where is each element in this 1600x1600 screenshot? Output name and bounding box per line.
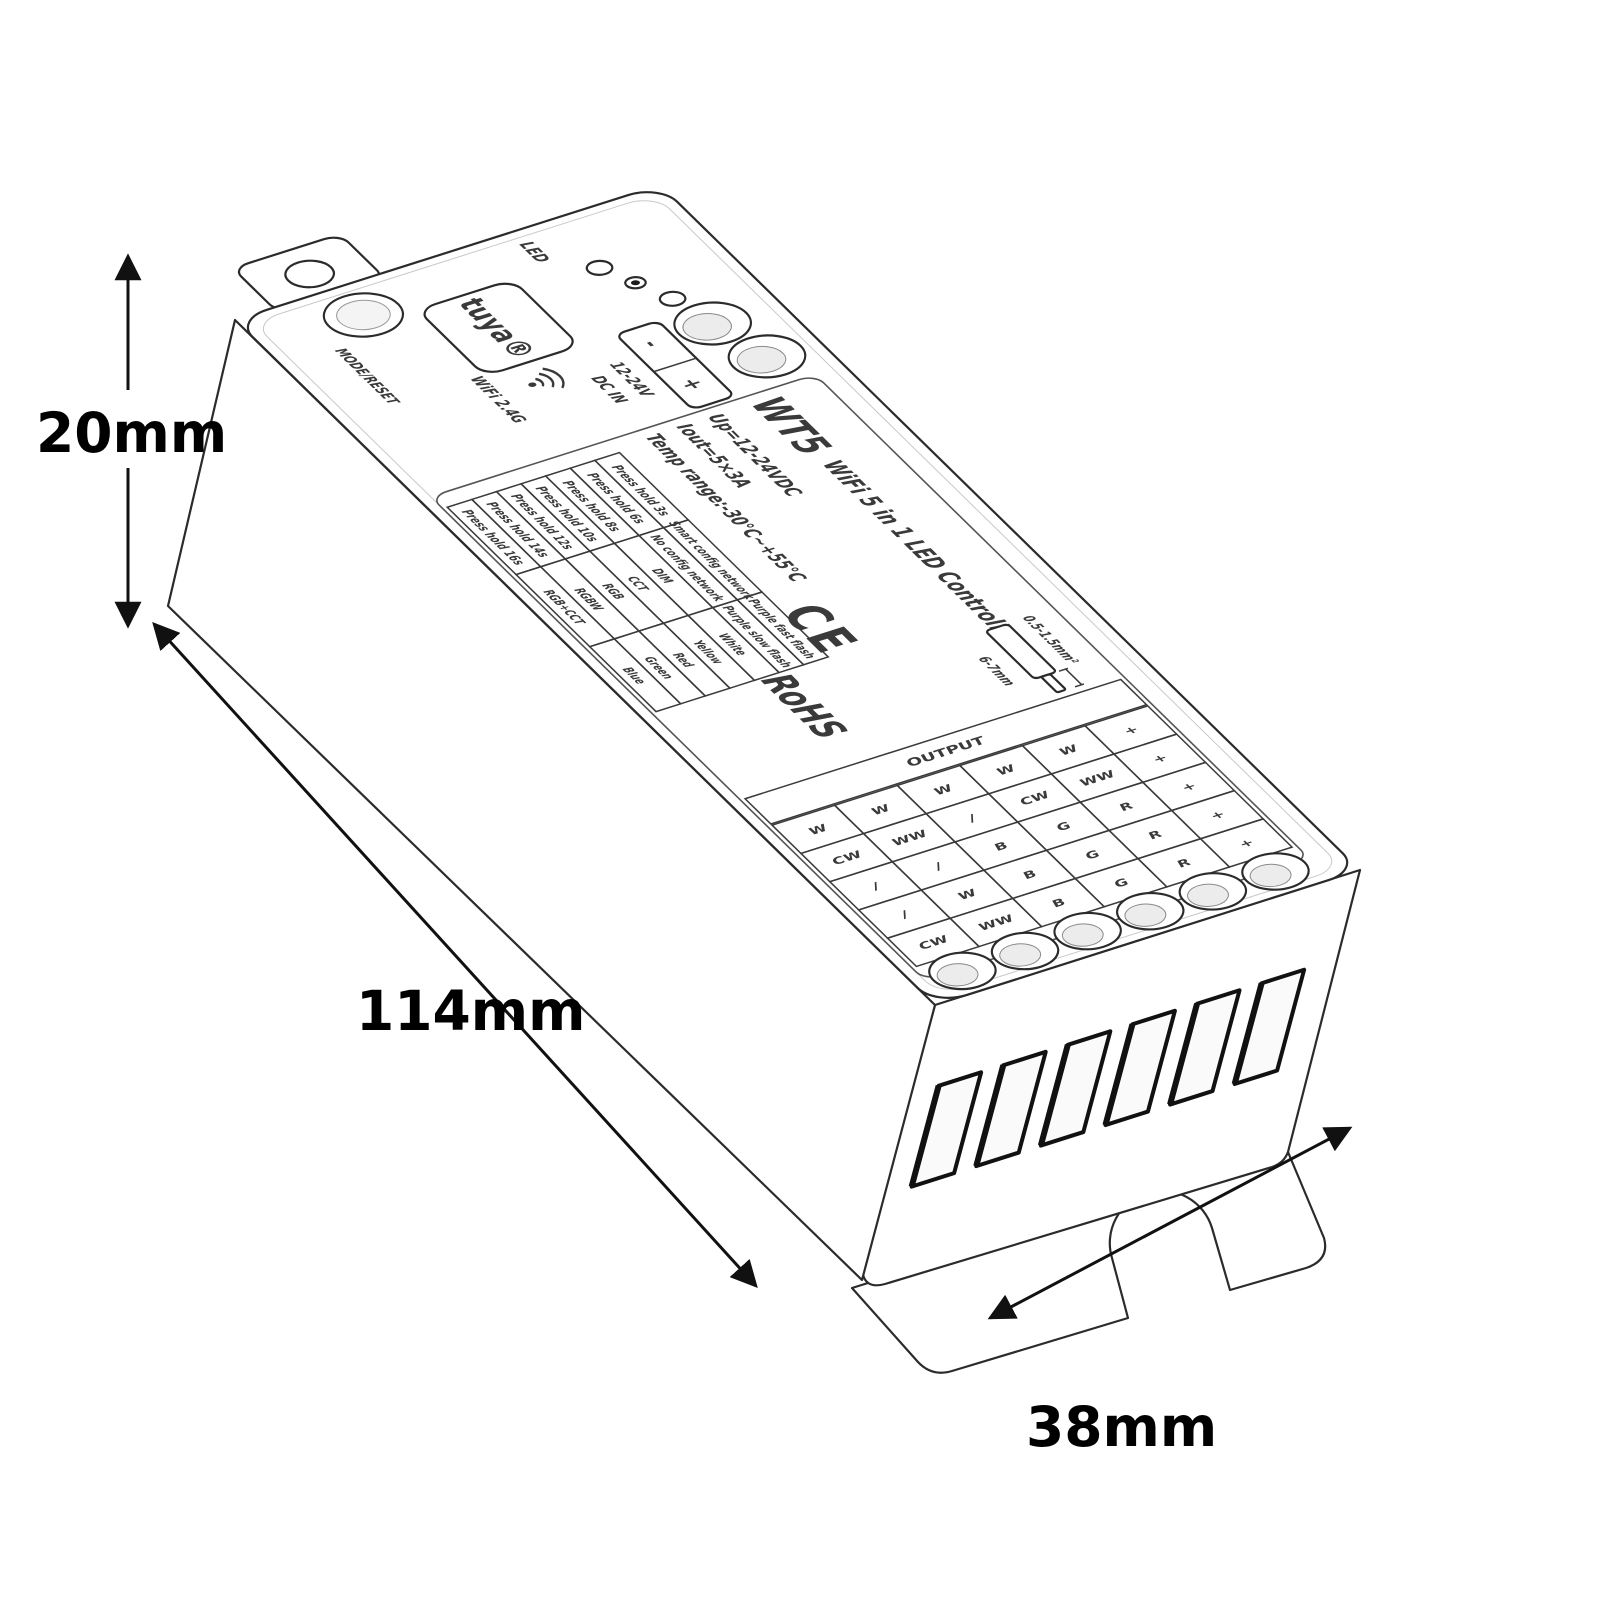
product-dimension-diagram: LED - + 12-24V DC IN MODE/RESET tuya® Wi… <box>0 0 1600 1600</box>
controller-drawing: LED - + 12-24V DC IN MODE/RESET tuya® Wi… <box>0 0 1600 1600</box>
length-value: 114mm <box>356 979 585 1043</box>
width-value: 38mm <box>1026 1395 1217 1459</box>
height-value: 20mm <box>36 401 227 465</box>
